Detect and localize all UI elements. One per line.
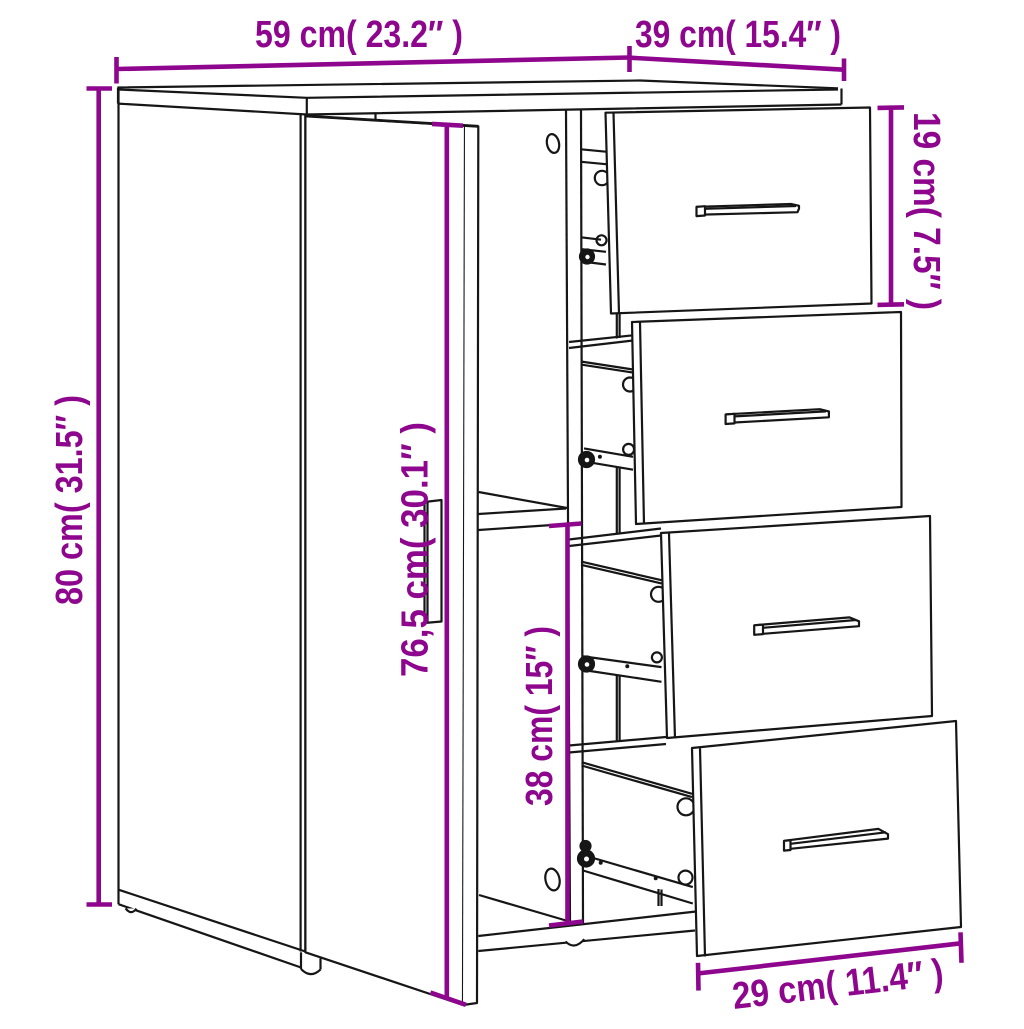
svg-text:76,5 cm( 30.1″ ): 76,5 cm( 30.1″ ) — [395, 422, 437, 677]
svg-text:19 cm( 7.5″ ): 19 cm( 7.5″ ) — [905, 112, 947, 310]
svg-text:38 cm( 15″ ): 38 cm( 15″ ) — [519, 626, 561, 806]
svg-text:80 cm( 31.5″ ): 80 cm( 31.5″ ) — [49, 395, 91, 605]
svg-text:59 cm( 23.2″ ): 59 cm( 23.2″ ) — [255, 14, 463, 56]
svg-text:39 cm( 15.4″ ): 39 cm( 15.4″ ) — [635, 14, 841, 56]
